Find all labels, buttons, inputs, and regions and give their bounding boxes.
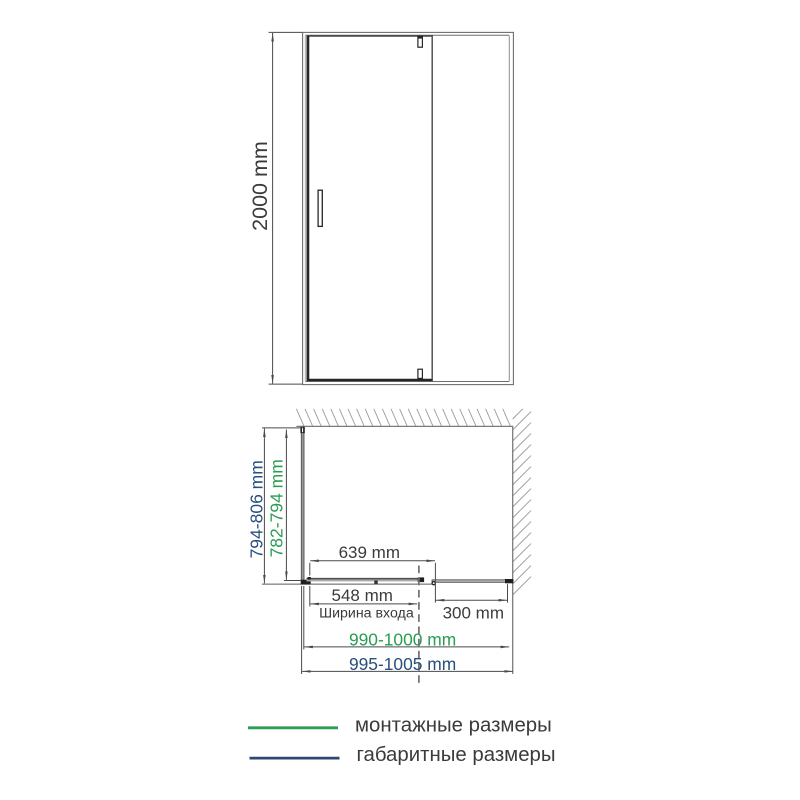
- svg-text:2000 mm: 2000 mm: [248, 141, 272, 231]
- svg-text:300 mm: 300 mm: [443, 604, 504, 623]
- svg-text:794-806 mm: 794-806 mm: [247, 460, 267, 558]
- svg-text:Ширина входа: Ширина входа: [319, 606, 414, 622]
- svg-text:782-794 mm: 782-794 mm: [267, 459, 287, 557]
- svg-text:548 mm: 548 mm: [331, 586, 392, 605]
- svg-text:995-1005 mm: 995-1005 mm: [349, 654, 456, 674]
- svg-text:габаритные размеры: габаритные размеры: [357, 744, 556, 766]
- svg-text:639 mm: 639 mm: [339, 543, 400, 562]
- svg-text:990-1000 mm: 990-1000 mm: [349, 630, 456, 650]
- svg-text:монтажные размеры: монтажные размеры: [355, 714, 552, 736]
